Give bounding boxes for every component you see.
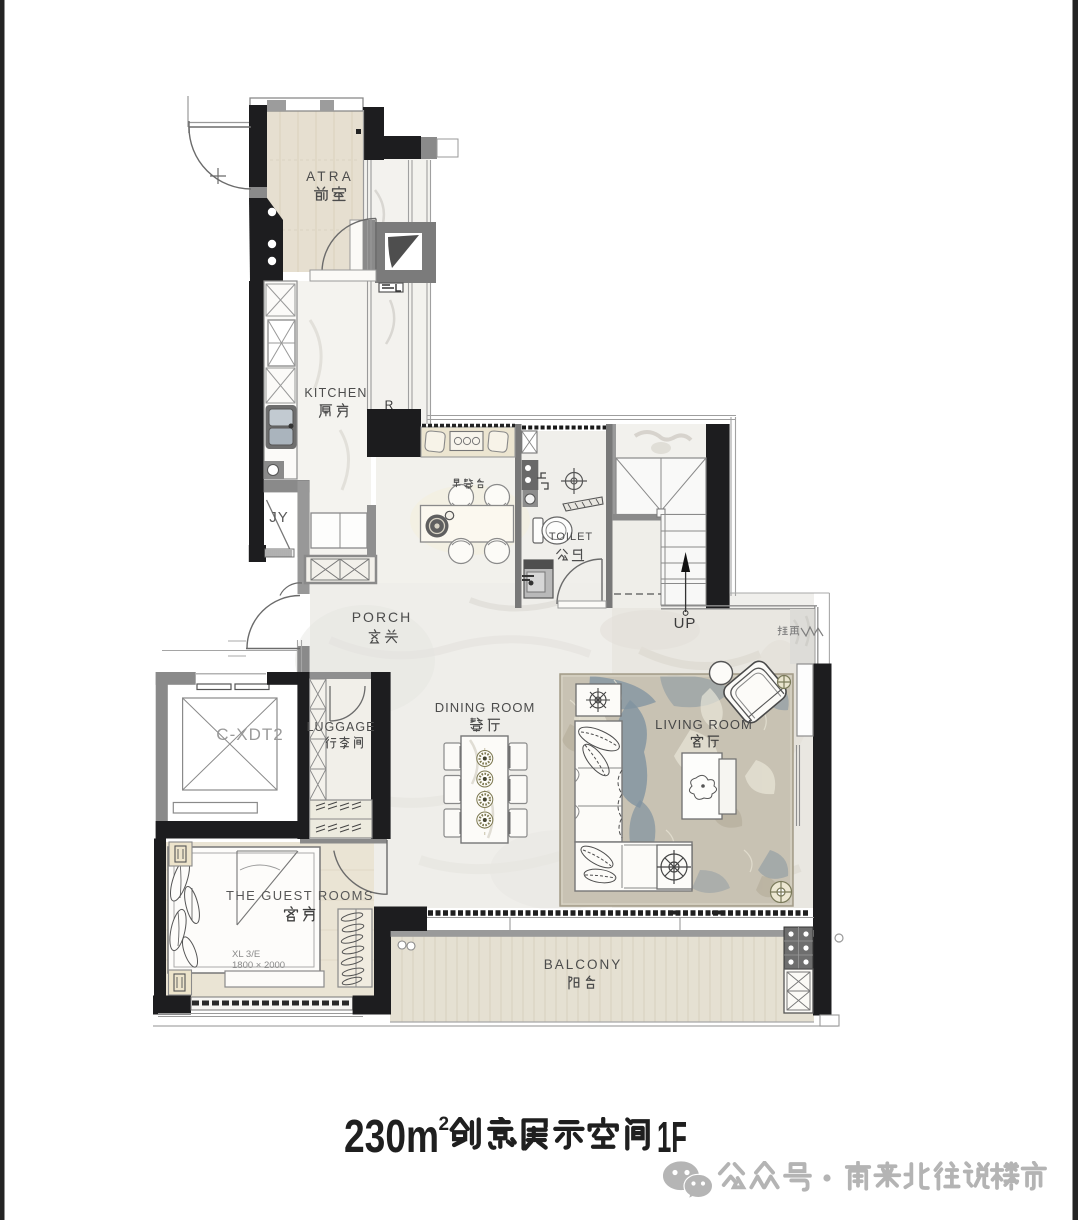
svg-text:JY: JY	[269, 509, 289, 526]
svg-text:UP: UP	[674, 615, 697, 632]
svg-text:1800 × 2000: 1800 × 2000	[232, 960, 285, 971]
svg-text:KITCHEN: KITCHEN	[304, 386, 367, 400]
svg-text:THE GUEST ROOMS: THE GUEST ROOMS	[226, 888, 374, 903]
svg-text:LUGGAGE: LUGGAGE	[307, 720, 376, 734]
svg-text:LIVING ROOM: LIVING ROOM	[655, 717, 753, 732]
svg-text:TOILET: TOILET	[549, 531, 593, 543]
svg-text:230m: 230m	[344, 1110, 439, 1162]
svg-text:PORCH: PORCH	[352, 609, 413, 625]
svg-text:C-XDT2: C-XDT2	[216, 725, 283, 744]
svg-text:DINING ROOM: DINING ROOM	[435, 700, 536, 715]
svg-text:2: 2	[439, 1114, 450, 1135]
svg-text:XL 3/E: XL 3/E	[232, 949, 260, 960]
svg-text:ATRA: ATRA	[306, 169, 354, 184]
svg-text:BALCONY: BALCONY	[544, 957, 623, 972]
svg-text:1F: 1F	[657, 1113, 687, 1162]
svg-text:R: R	[385, 398, 394, 412]
